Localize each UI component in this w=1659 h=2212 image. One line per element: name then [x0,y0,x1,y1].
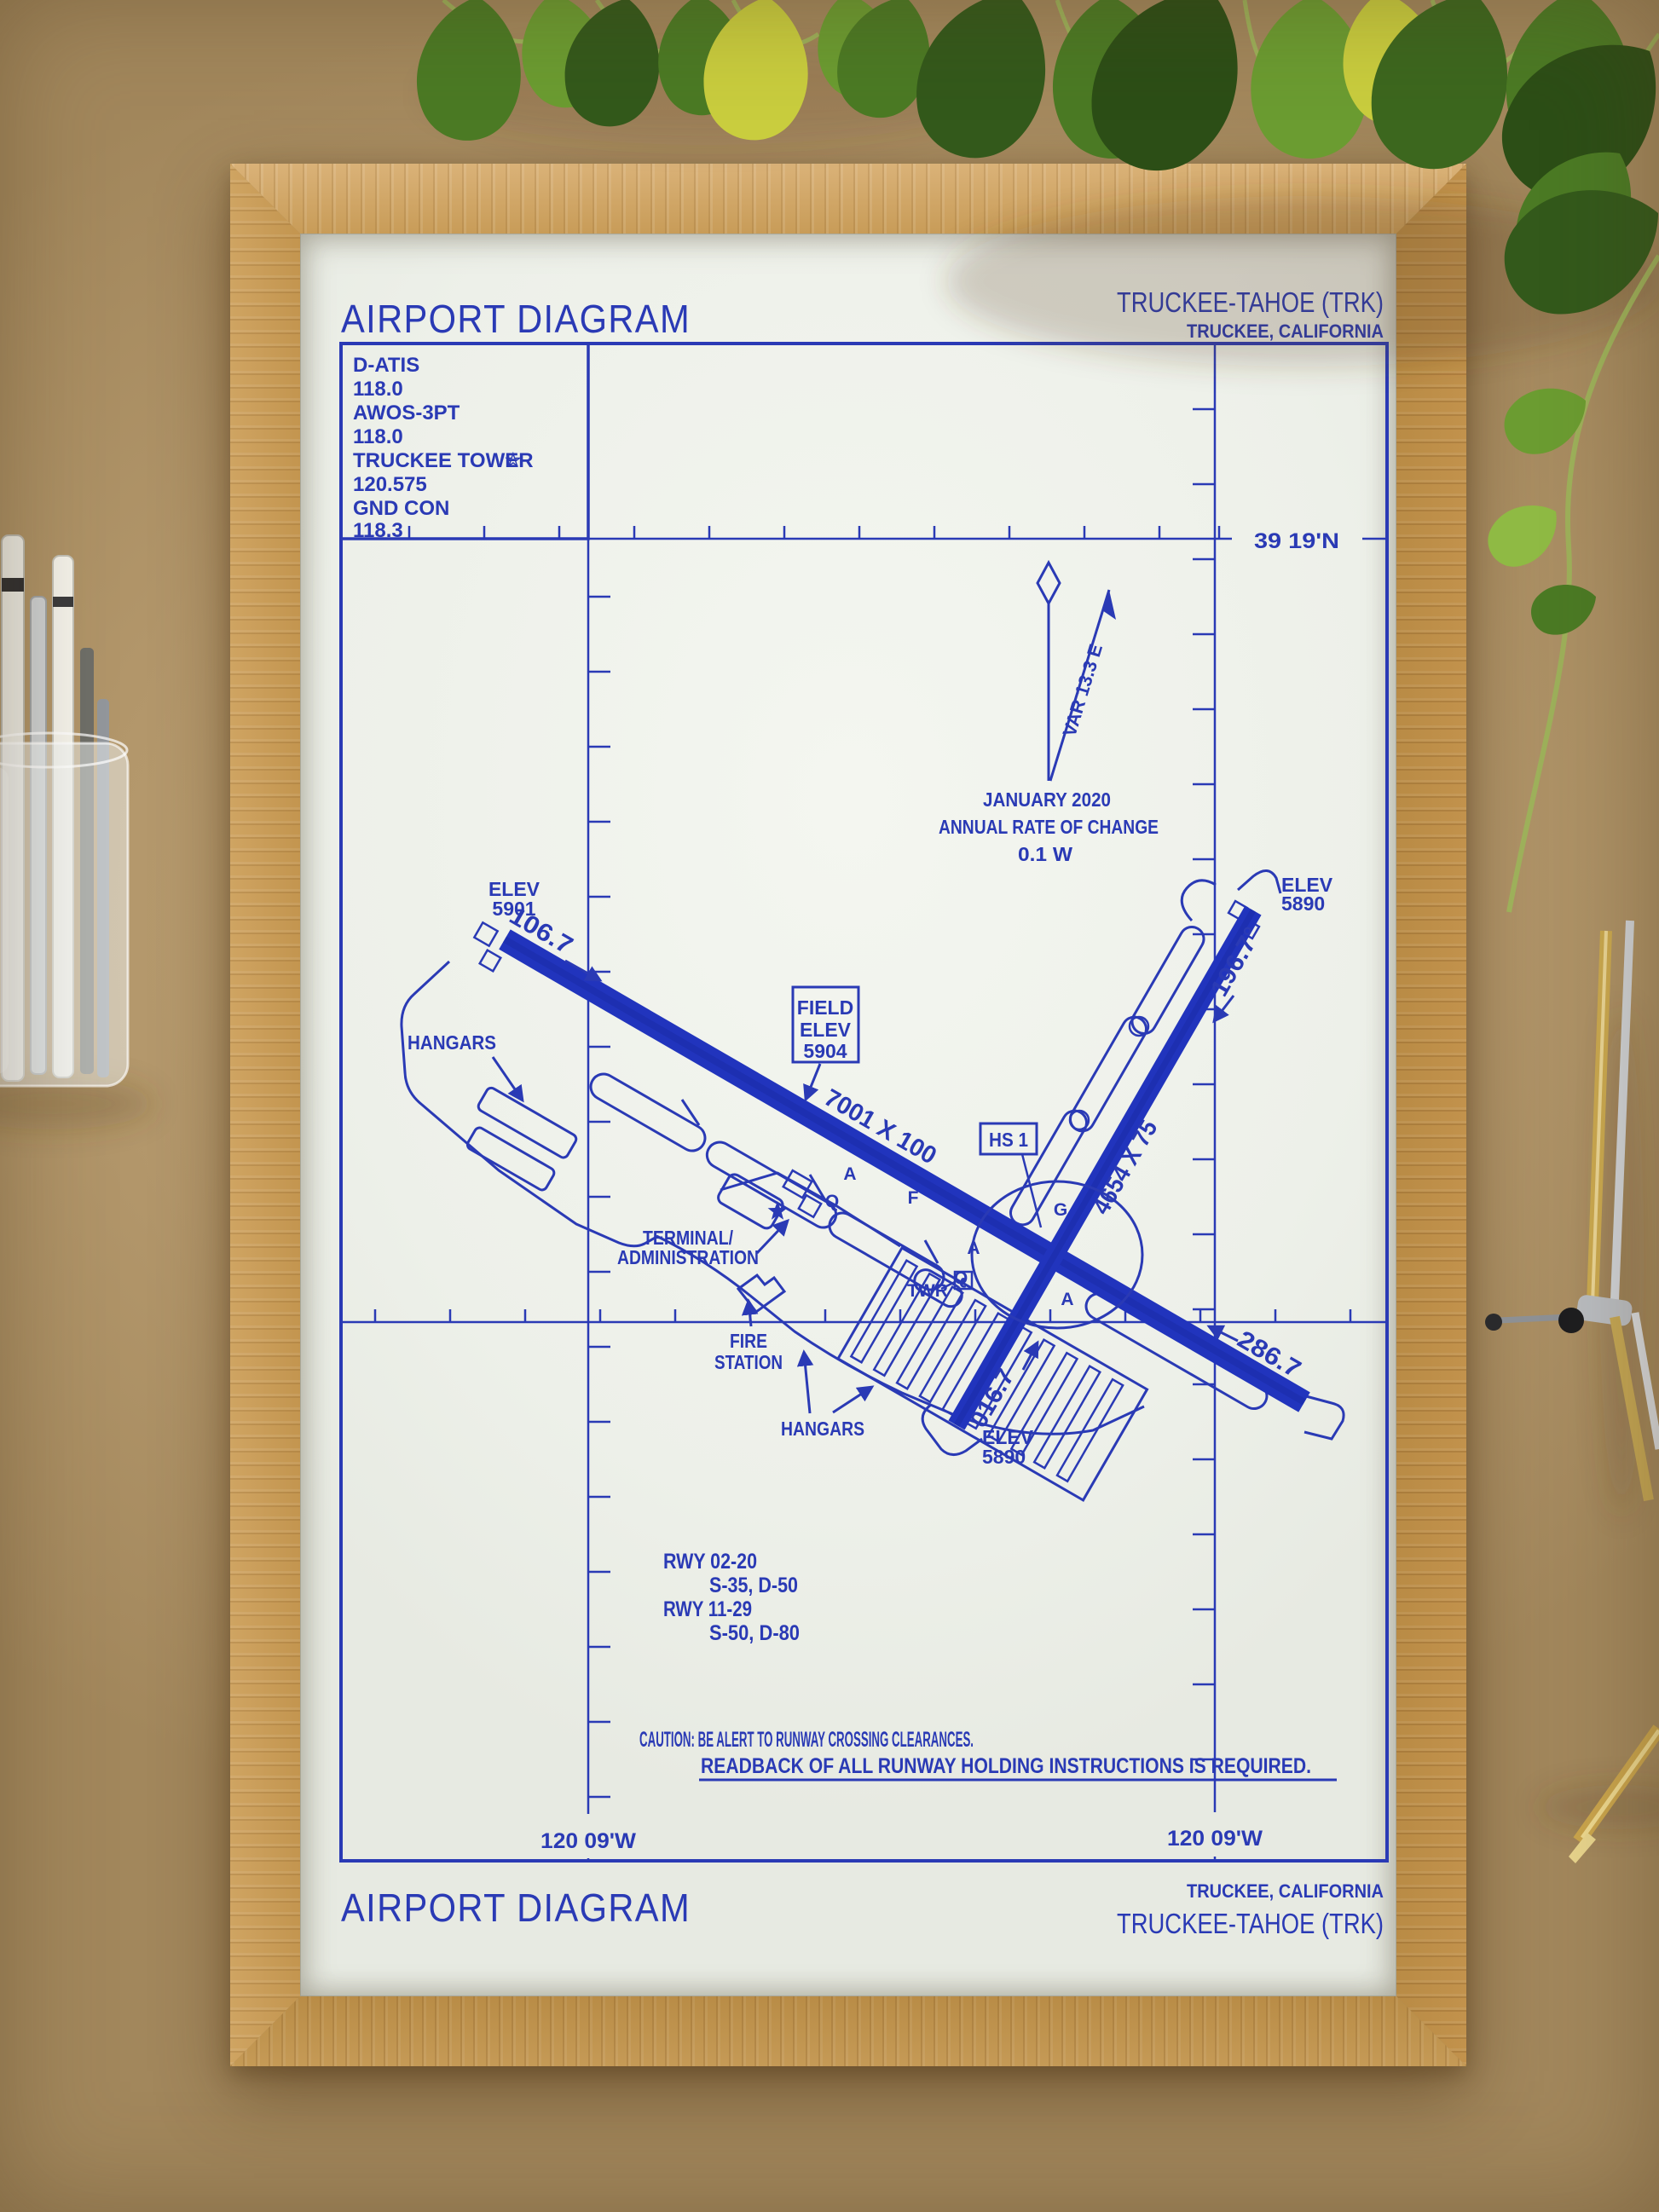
runway-data-line: S-50, D-80 [709,1621,800,1645]
plant-leaf [1049,0,1172,160]
brass-tool [1569,1729,1659,1863]
latitude-label: 39 19'N [1254,529,1339,553]
compass-knob [1485,1314,1502,1331]
plant-leaf [808,0,901,104]
taxiway-letter: Q [825,1192,839,1211]
plant-leaf [1524,574,1604,642]
tower-star-icon: ☆ [505,449,522,471]
desk-scene: AIRPORT DIAGRAM TRUCKEE-TAHOE (TRK) TRUC… [0,0,1659,2212]
picture-frame: AIRPORT DIAGRAM TRUCKEE-TAHOE (TRK) TRUC… [230,164,1466,2066]
hangars-s-label: HANGARS [781,1418,864,1440]
comm-frequency-list: D-ATIS 118.0 AWOS-3PT 118.0 TRUCKEE TOWE… [353,354,534,542]
plant-leaf [897,0,1073,176]
hangars-nw-label: HANGARS [408,1031,496,1054]
plant-leaf [1248,0,1371,160]
plant-leaf [696,0,818,147]
runway-11-29 [505,939,1304,1402]
fire-station-label-2: STATION [714,1351,783,1373]
pen [97,699,109,1077]
longitude-label-left: 120 09'W [540,1829,636,1853]
plant-leaf [1474,5,1659,228]
page-title-bottom: AIRPORT DIAGRAM [341,1886,691,1930]
variation-rate-value: 0.1 W [1018,843,1072,865]
tower-label: TWR [907,1281,948,1301]
pen [2,535,24,1081]
comm-line: 118.3 [353,519,403,542]
airport-diagram: AIRPORT DIAGRAM TRUCKEE-TAHOE (TRK) TRUC… [300,234,1396,1996]
comm-line: 120.575 [353,473,427,496]
fire-station-building [738,1275,784,1312]
caution-note: CAUTION: BE ALERT TO RUNWAY CROSSING CLE… [639,1728,1337,1780]
plant-leaf [656,0,746,117]
comm-line: 118.0 [353,425,403,448]
variation-date: JANUARY 2020 [983,788,1111,811]
frame-bottom [230,1996,1466,2066]
fire-station-label-1: FIRE [730,1330,767,1352]
airport-name-top: TRUCKEE-TAHOE (TRK) [1117,286,1384,318]
elev-value: 5890 [982,1446,1026,1468]
variation-rate-caption: ANNUAL RATE OF CHANGE [939,816,1159,838]
caution-line-1: CAUTION: BE ALERT TO RUNWAY CROSSING CLE… [639,1728,974,1752]
plant-leaf [824,0,949,130]
plant-leaf [1494,124,1659,302]
plant-leaf [1333,0,1448,132]
variation-label: VAR 13.3 E [1059,642,1107,739]
comm-line: 118.0 [353,378,403,401]
frame-right [1396,164,1466,2066]
drafting-compass [1485,921,1659,1500]
glass-cup [0,743,128,1086]
frame-top [230,164,1466,234]
plant-leaf [1350,0,1536,188]
taxiway-letter: A [843,1164,856,1184]
plant-leaf [1477,488,1571,578]
hotspot-label: HS 1 [989,1129,1028,1151]
plant-leaf [1494,373,1598,465]
runway-data-block: RWY 02-20 S-35, D-50 RWY 11-29 S-50, D-8… [663,1550,800,1645]
page-title-top: AIRPORT DIAGRAM [341,297,691,341]
pen [31,597,46,1074]
rwy20-heading-arrow [1214,996,1234,1021]
airport-city-bottom: TRUCKEE, CALIFORNIA [1187,1880,1384,1902]
runway-data-line: RWY 11-29 [663,1597,752,1621]
caution-line-2: READBACK OF ALL RUNWAY HOLDING INSTRUCTI… [701,1754,1311,1778]
field-elev-line: 5904 [803,1040,847,1062]
runway-data-line: RWY 02-20 [663,1550,757,1574]
airport-city-top: TRUCKEE, CALIFORNIA [1187,321,1384,342]
plant-leaf [1485,160,1659,336]
longitude-label-right: 120 09'W [1167,1827,1263,1851]
comm-line: GND CON [353,497,449,520]
taxiway-letter: Q [954,1268,968,1288]
plant-leaf [1500,0,1639,168]
runway-data-line: S-35, D-50 [709,1574,798,1597]
field-elev-line: ELEV [800,1019,852,1041]
comm-line: D-ATIS [353,354,419,377]
pencil [80,648,94,1074]
comm-line: AWOS-3PT [353,401,460,424]
elev-value: 5890 [1281,892,1325,915]
plant-leaf [512,0,613,114]
plant-leaf [555,0,673,136]
frame-left [230,164,300,2066]
terminal-label-2: ADMINISTRATION [617,1246,759,1268]
taxiway-letter: A [1061,1290,1073,1309]
plant-leaf [411,0,529,146]
field-elev-callout: FIELD ELEV 5904 [793,987,858,1100]
airport-name-bottom: TRUCKEE-TAHOE (TRK) [1117,1908,1384,1939]
taxiway-letter: F [908,1188,919,1208]
print-paper: AIRPORT DIAGRAM TRUCKEE-TAHOE (TRK) TRUC… [300,234,1396,1996]
pen-cup [0,535,128,1086]
taxiway-letter: G [1054,1200,1067,1220]
field-elev-line: FIELD [797,996,853,1019]
taxiway-letter: A [967,1239,980,1258]
pen [53,556,73,1077]
